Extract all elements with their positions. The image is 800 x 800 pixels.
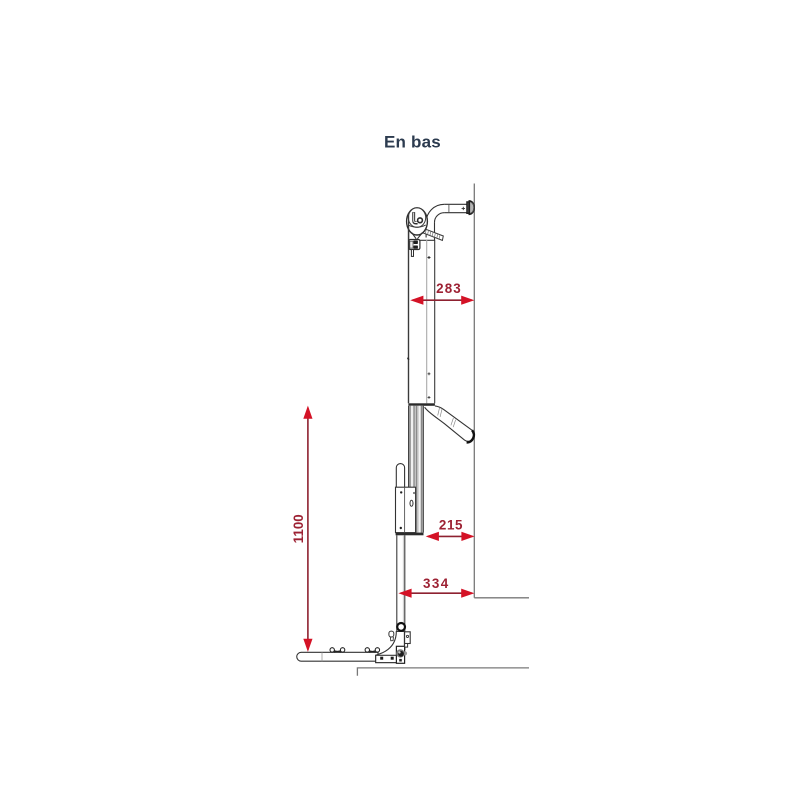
svg-text:215: 215 bbox=[439, 517, 463, 532]
svg-text:283: 283 bbox=[436, 281, 462, 296]
svg-text:1100: 1100 bbox=[291, 514, 306, 543]
svg-text:334: 334 bbox=[423, 576, 450, 591]
svg-text:En bas: En bas bbox=[384, 133, 441, 152]
